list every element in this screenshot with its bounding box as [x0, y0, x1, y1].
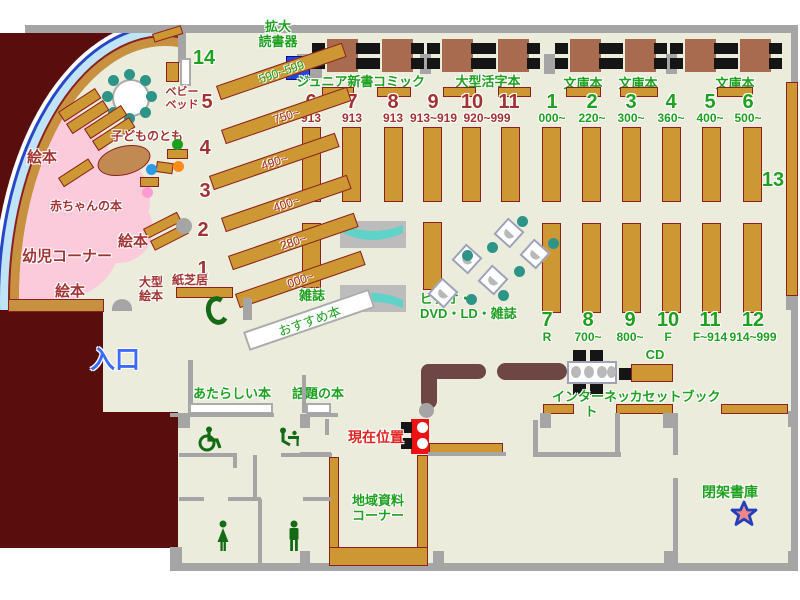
cd-shelf [631, 364, 673, 382]
reading-table [570, 39, 601, 72]
stack-range: 000~ [532, 112, 572, 124]
wall [307, 413, 338, 417]
wall [25, 25, 791, 33]
step-box [167, 149, 188, 159]
pillar [786, 296, 798, 310]
baby-bed-label: ベビー ベッド [158, 86, 206, 111]
stack-number-13: 13 [758, 170, 788, 190]
stack-range: 913 [332, 112, 372, 124]
wheelchair-icon [196, 426, 224, 452]
toddler-corner-label: 幼児コーナー [22, 248, 112, 265]
new-books-label: あたらしい本 [192, 387, 272, 402]
wall [325, 419, 329, 435]
stack-range: 220~ [572, 112, 612, 124]
pillar [419, 403, 434, 418]
kamishibai-shelf [176, 287, 233, 298]
chair-dot [124, 69, 135, 80]
pillar [300, 551, 310, 564]
pillar [540, 413, 551, 428]
bookshelf [582, 127, 601, 202]
pillar [664, 551, 678, 564]
chair-dot [140, 75, 151, 86]
baby-bed [180, 58, 191, 86]
stack-number: 9 [413, 92, 453, 112]
man-icon [286, 520, 302, 552]
closed-stacks-label: 閉架書庫 [694, 484, 766, 500]
pillar [544, 54, 555, 74]
marker-dot [417, 438, 428, 449]
service-counter [421, 364, 437, 409]
pillar [663, 413, 677, 428]
terminal [607, 366, 616, 378]
bookshelf [384, 127, 403, 202]
stack-range: 500~ [728, 112, 768, 124]
stack-number: 2 [572, 92, 612, 112]
stack-range: 800~ [610, 331, 650, 343]
entrance-label: 入口 [82, 346, 148, 375]
current-position-label: 現在位置 [344, 429, 408, 445]
local-materials-shelf [329, 547, 428, 566]
wall [233, 453, 237, 468]
ehon-label: 絵本 [113, 233, 153, 250]
seat-dot-pink [142, 187, 153, 198]
bookshelf [622, 127, 641, 202]
shelf-number: 2 [188, 220, 218, 240]
seat-dot-blue [146, 164, 157, 175]
stack-number: 6 [728, 92, 768, 112]
stack-range: R [527, 331, 567, 343]
stack-number: 10 [452, 92, 492, 112]
seat-dot-orange [173, 161, 184, 172]
stack-number: 1 [532, 92, 572, 112]
chair-dot [466, 294, 477, 305]
stack-range: 913~919 [406, 112, 461, 124]
chair [573, 350, 586, 361]
seat-dot-green [172, 139, 183, 150]
pillar [243, 298, 252, 320]
bookshelf [542, 223, 561, 313]
bookshelf [702, 127, 721, 202]
cassette-shelf [721, 404, 788, 414]
stack-number: 4 [651, 92, 691, 112]
local-materials-shelf [329, 457, 339, 561]
stack-range-shared: 920~999 [457, 112, 517, 124]
bookshelf [462, 127, 481, 202]
stack-range: F [648, 331, 688, 343]
reading-table [442, 39, 473, 72]
wall [179, 453, 236, 457]
reading-table [625, 39, 656, 72]
baby-books-label: 赤ちゃんの本 [48, 200, 124, 214]
chair [610, 43, 623, 54]
bookshelf [662, 223, 681, 313]
chair [670, 43, 683, 54]
chair [619, 368, 631, 380]
step-box [140, 177, 159, 187]
wall [615, 413, 620, 455]
kamishibai-label: 紙芝居 [169, 274, 211, 288]
wall [428, 452, 506, 456]
wall [170, 563, 798, 571]
topic-books-label: 話題の本 [283, 387, 353, 402]
baby-bed-table [166, 62, 179, 82]
stack-number: 8 [568, 310, 608, 330]
stack-range: 700~ [568, 331, 608, 343]
step-box [155, 161, 173, 174]
stack-number: 5 [690, 92, 730, 112]
chair-dot [146, 91, 157, 102]
marker-dot [417, 422, 428, 433]
terminal [571, 366, 581, 378]
bookshelf [542, 127, 561, 202]
stack-number: 12 [733, 310, 773, 330]
magnifier-label: 拡大 読書器 [248, 20, 308, 50]
stack-number: 11 [690, 310, 730, 330]
chair-dot [514, 266, 525, 277]
reading-table [740, 39, 771, 72]
chair [367, 43, 380, 54]
bookshelf [423, 127, 442, 202]
local-materials-label: 地域資料 コーナー [342, 494, 414, 524]
chair [427, 43, 440, 54]
stack-range: 360~ [651, 112, 691, 124]
stack-number: 9 [610, 310, 650, 330]
pillar [788, 551, 798, 564]
bookshelf [622, 223, 641, 313]
service-counter [497, 363, 567, 380]
stack-range: 300~ [611, 112, 651, 124]
chair [555, 43, 568, 54]
wall [302, 375, 306, 413]
stack-number: 10 [648, 310, 688, 330]
chair-dot [108, 75, 119, 86]
chair-dot [498, 290, 509, 301]
terminal [584, 366, 594, 378]
reading-table [498, 39, 529, 72]
bookshelf [743, 127, 762, 202]
chair [725, 43, 738, 54]
stack-number: 8 [373, 92, 413, 112]
stack-range: 400~ [690, 112, 730, 124]
reading-table [685, 39, 716, 72]
chair-dot [517, 216, 528, 227]
wall [258, 499, 262, 565]
pillar [170, 547, 182, 564]
bookshelf [743, 223, 762, 313]
pillar [433, 551, 444, 564]
chair [590, 350, 603, 361]
wall [303, 497, 331, 501]
star-icon [729, 499, 759, 529]
wall [533, 452, 621, 457]
local-materials-shelf [417, 455, 428, 561]
stack-number: 7 [527, 310, 567, 330]
shelf-number: 14 [189, 48, 219, 68]
wall [253, 455, 257, 499]
staff-area [103, 412, 178, 548]
ehon-label: 絵本 [48, 283, 92, 300]
chair-dot [487, 242, 498, 253]
chair-dot [462, 250, 473, 261]
shelf-number: 4 [190, 138, 220, 158]
chair [483, 43, 496, 54]
pillar [178, 414, 190, 428]
woman-icon [215, 520, 231, 552]
pillar [176, 218, 192, 234]
reading-table [382, 39, 413, 72]
chair-dot [140, 107, 151, 118]
stack-range: 914~999 [724, 331, 782, 343]
pillar [420, 54, 431, 74]
pillar [788, 411, 798, 427]
stack-number: 3 [611, 92, 651, 112]
ehon-label: 絵本 [22, 149, 62, 166]
cd-label: CD [640, 348, 670, 363]
baby-change-icon [276, 426, 302, 452]
bookshelf [501, 127, 520, 202]
magazines-label: 雑誌 [291, 289, 333, 304]
terminal [597, 366, 607, 378]
bookshelf [662, 127, 681, 202]
wall [179, 497, 204, 501]
bookshelf [702, 223, 721, 313]
bookshelf [582, 223, 601, 313]
shelf-number: 3 [190, 181, 220, 201]
cassette-label: カセットブック [627, 390, 723, 405]
wall [533, 420, 538, 454]
wall [228, 497, 261, 501]
large-ehon-label: 大型 絵本 [132, 276, 170, 304]
library-floor-map: 拡大 読書器 ジュニア新書 コミック 大型活字本 文庫本 文庫本 文庫本 6 7… [0, 0, 800, 600]
pillar [666, 54, 677, 74]
wall [300, 452, 331, 456]
chair-dot [548, 238, 559, 249]
kids-wall [8, 299, 104, 312]
stack-number: 11 [489, 92, 529, 112]
